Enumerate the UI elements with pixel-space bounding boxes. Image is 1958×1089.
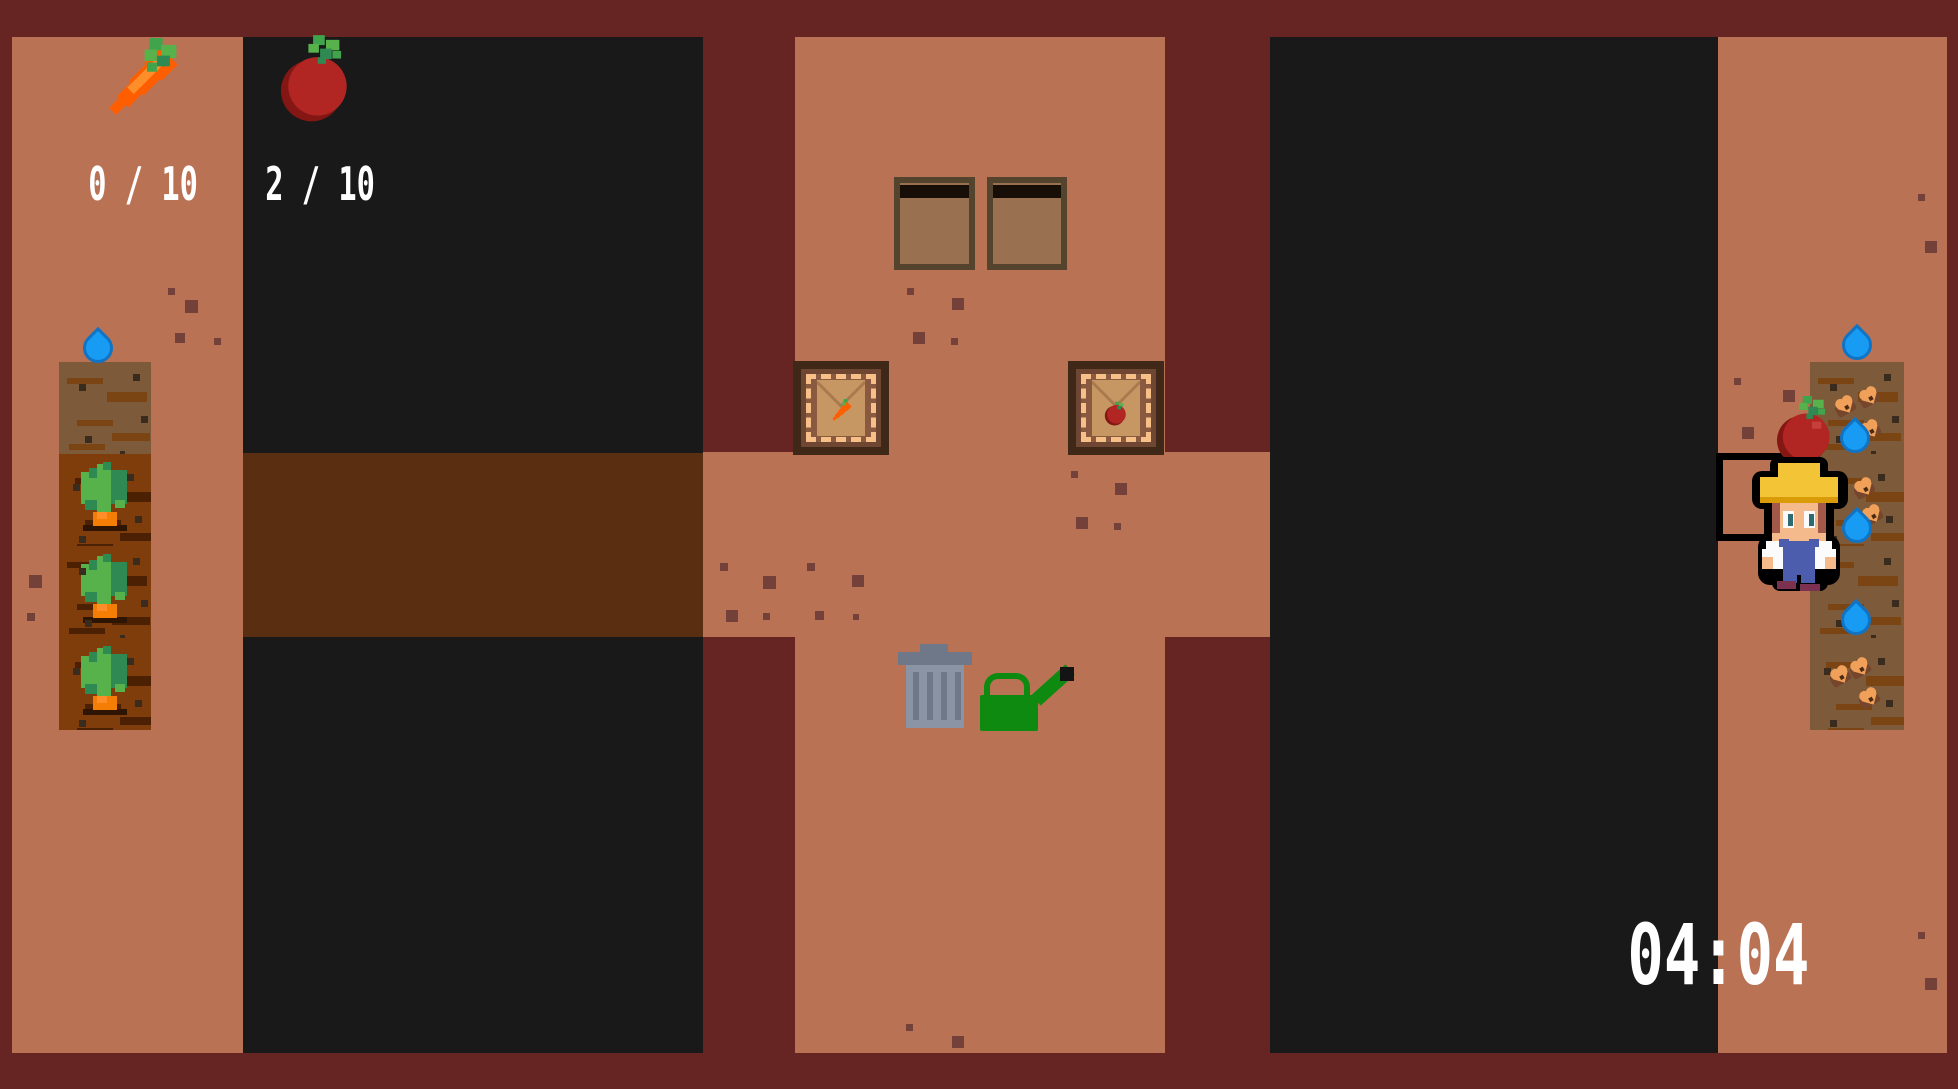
planted-seed-icon	[1845, 652, 1875, 682]
storage-crate-right[interactable]	[987, 177, 1067, 270]
ground-speck	[726, 610, 738, 622]
watering-can-body	[980, 695, 1038, 731]
game-viewport: 0 / 10 2 / 10 04:04	[0, 0, 1958, 1089]
crate-opening	[993, 185, 1061, 198]
tomato-seed-box[interactable]	[1068, 361, 1164, 455]
ground-speck	[720, 563, 728, 571]
plot-tile-dry[interactable]	[59, 362, 151, 454]
ground-speck	[763, 576, 776, 589]
plot-tile-carrot[interactable]	[59, 454, 151, 546]
tomato-counter: 2 / 10	[237, 164, 387, 204]
trash-can[interactable]	[898, 643, 972, 728]
ground-speck	[1918, 932, 1925, 939]
planted-seed	[1845, 652, 1875, 682]
watering-can-tip	[1060, 667, 1074, 681]
carrot-seed-icon	[828, 398, 854, 426]
ground-speck	[853, 614, 859, 620]
tomato-icon	[278, 34, 354, 124]
planted-seed-icon	[1854, 682, 1884, 712]
carrot-plant	[73, 646, 137, 722]
carrot-farm-plot[interactable]	[59, 362, 151, 730]
carrot-seed-box[interactable]	[793, 361, 889, 455]
game-timer-value: 04:04	[1627, 922, 1809, 988]
carrot-counter-value: 0 / 10	[88, 164, 198, 204]
void-column-right	[1270, 37, 1718, 1053]
ground-speck	[952, 1036, 964, 1048]
ground-speck	[951, 338, 958, 345]
planted-seed	[1854, 381, 1884, 411]
plot-tile-carrot[interactable]	[59, 546, 151, 638]
corridor-dirt-path	[243, 453, 703, 637]
farmer-character[interactable]	[1750, 455, 1850, 591]
trash-body	[906, 665, 964, 728]
ground-speck	[29, 575, 42, 588]
ground-speck	[27, 613, 35, 621]
planted-seed-icon	[1849, 472, 1879, 502]
plot-tile-carrot[interactable]	[59, 638, 151, 730]
ground-speck	[1114, 523, 1121, 530]
game-timer: 04:04	[1592, 922, 1842, 988]
trash-lid	[898, 652, 972, 665]
crate-opening	[900, 185, 969, 198]
seed-packet	[1092, 380, 1140, 436]
ground-speck	[1925, 978, 1937, 990]
ground-speck	[807, 563, 815, 571]
planted-seed	[1849, 472, 1879, 502]
tomato-seed-icon	[1103, 398, 1129, 426]
planted-seed-icon	[1854, 381, 1884, 411]
planted-seed	[1854, 682, 1884, 712]
watering-can[interactable]	[978, 658, 1076, 734]
ground-speck	[175, 333, 185, 343]
ground-speck	[815, 611, 824, 620]
carrot-plant	[73, 554, 137, 630]
ground-speck	[1918, 194, 1925, 201]
ground-speck	[952, 298, 964, 310]
ground-speck	[906, 1024, 913, 1031]
ground-speck	[1925, 241, 1937, 253]
ground-speck	[1115, 483, 1127, 495]
ground-speck	[214, 338, 221, 345]
carrot-counter: 0 / 10	[60, 164, 210, 204]
tomato-counter-value: 2 / 10	[265, 164, 375, 204]
ground-speck	[1742, 427, 1754, 439]
storage-crate-left[interactable]	[894, 177, 975, 270]
seed-packet	[817, 380, 865, 436]
carrot-icon	[94, 38, 186, 130]
ground-speck	[763, 613, 770, 620]
ground-speck	[1076, 517, 1088, 529]
carrot-plant	[73, 462, 137, 538]
ground-speck	[1071, 471, 1078, 478]
ground-speck	[1734, 378, 1741, 385]
ground-speck	[168, 288, 175, 295]
ground-speck	[913, 332, 925, 344]
ground-speck	[185, 300, 198, 313]
ground-speck	[852, 575, 864, 587]
ground-speck	[907, 288, 914, 295]
corridor-ground-path	[703, 452, 1270, 637]
